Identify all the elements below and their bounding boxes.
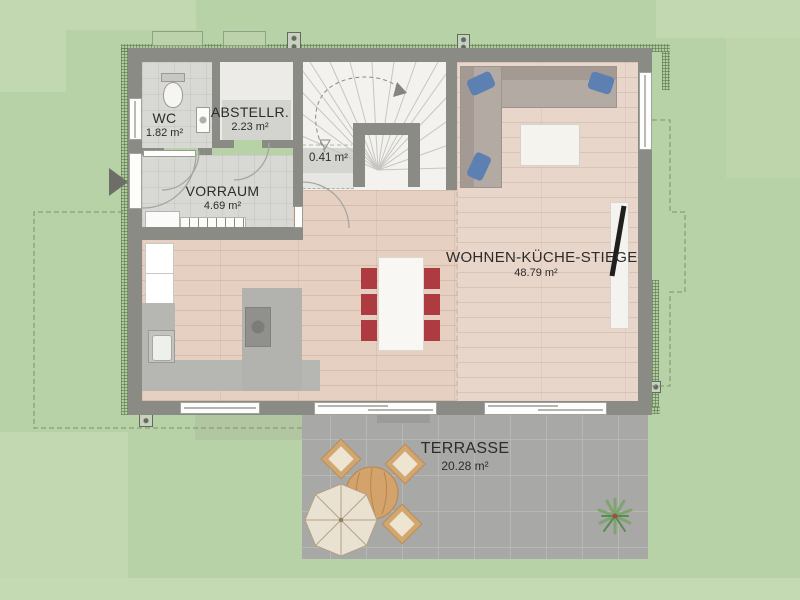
entrance-door-leaf [143, 150, 196, 157]
kitchen-door-leaf [294, 206, 303, 228]
room-area: 48.79 m² [446, 267, 626, 280]
room-label-stair-niche: 0.41 m² [303, 152, 354, 166]
roof-element [152, 31, 203, 46]
room-name: WOHNEN-KÜCHE-STIEGE [446, 249, 626, 267]
room-label-abstellraum: ABSTELLR. 2.23 m² [210, 104, 290, 133]
room-area: 2.23 m² [210, 121, 290, 134]
wall-stair-right [446, 62, 457, 190]
window-kitchen [180, 402, 260, 414]
grass-patch [0, 432, 128, 578]
dining-chair [424, 268, 440, 289]
floor-plan: WC 1.82 m² ABSTELLR. 2.23 m² VORRAUM 4.6… [0, 0, 800, 600]
wall-stair-core [353, 123, 420, 135]
grass-patch [0, 0, 196, 30]
room-area: 20.28 m² [405, 459, 525, 473]
wall-stair-core [353, 135, 365, 187]
room-label-wc: WC 1.82 m² [132, 110, 197, 139]
wall-abstellraum-bottom [220, 140, 234, 148]
room-label-terrasse: TERRASSE 20.28 m² [405, 440, 525, 473]
stair-threshold [303, 173, 354, 189]
dining-chair [424, 294, 440, 315]
wall-exterior-top [128, 48, 652, 62]
wall-abstellraum-bottom [262, 140, 293, 148]
room-name: VORRAUM [175, 183, 270, 200]
wall-vorraum-right [293, 62, 303, 207]
dining-chair [361, 320, 377, 341]
room-name: WC [132, 110, 197, 127]
wall-wc-bottom [198, 148, 212, 155]
room-area: 1.82 m² [132, 127, 197, 140]
sliding-door-terrace [484, 402, 607, 415]
room-name: ABSTELLR. [210, 104, 290, 121]
wall-vorraum-bottom [142, 227, 303, 240]
room-label-vorraum: VORRAUM 4.69 m² [175, 183, 270, 212]
entrance-arrow-icon [109, 168, 128, 196]
dining-chair [361, 294, 377, 315]
window-living-right [639, 72, 652, 150]
sink-icon [148, 330, 175, 363]
coffee-table [520, 124, 580, 166]
terrace-paving [302, 415, 648, 559]
room-area: 0.41 m² [303, 152, 354, 166]
dining-chair [361, 268, 377, 289]
washbasin-icon [196, 107, 210, 133]
grass-patch [0, 578, 800, 600]
cooktop-icon [245, 307, 271, 347]
entrance-door [129, 153, 142, 209]
toilet-icon [163, 82, 183, 108]
wall-stair-core [408, 135, 420, 187]
toilet-tank [161, 73, 185, 82]
sink-basin [152, 335, 172, 361]
sliding-door-terrace [314, 402, 437, 415]
grass-patch [656, 0, 800, 38]
room-area: 4.69 m² [175, 200, 270, 213]
room-name: TERRASSE [405, 440, 525, 459]
room-label-wohnen: WOHNEN-KÜCHE-STIEGE 48.79 m² [446, 249, 626, 280]
roof-element [223, 31, 266, 46]
grass-patch [0, 30, 66, 92]
dining-table [378, 257, 424, 351]
grass-patch [726, 38, 800, 178]
facade-hatch-right-top [662, 52, 670, 90]
garden-path [195, 414, 302, 440]
dining-chair [424, 320, 440, 341]
kitchen-tall-units [145, 243, 174, 304]
